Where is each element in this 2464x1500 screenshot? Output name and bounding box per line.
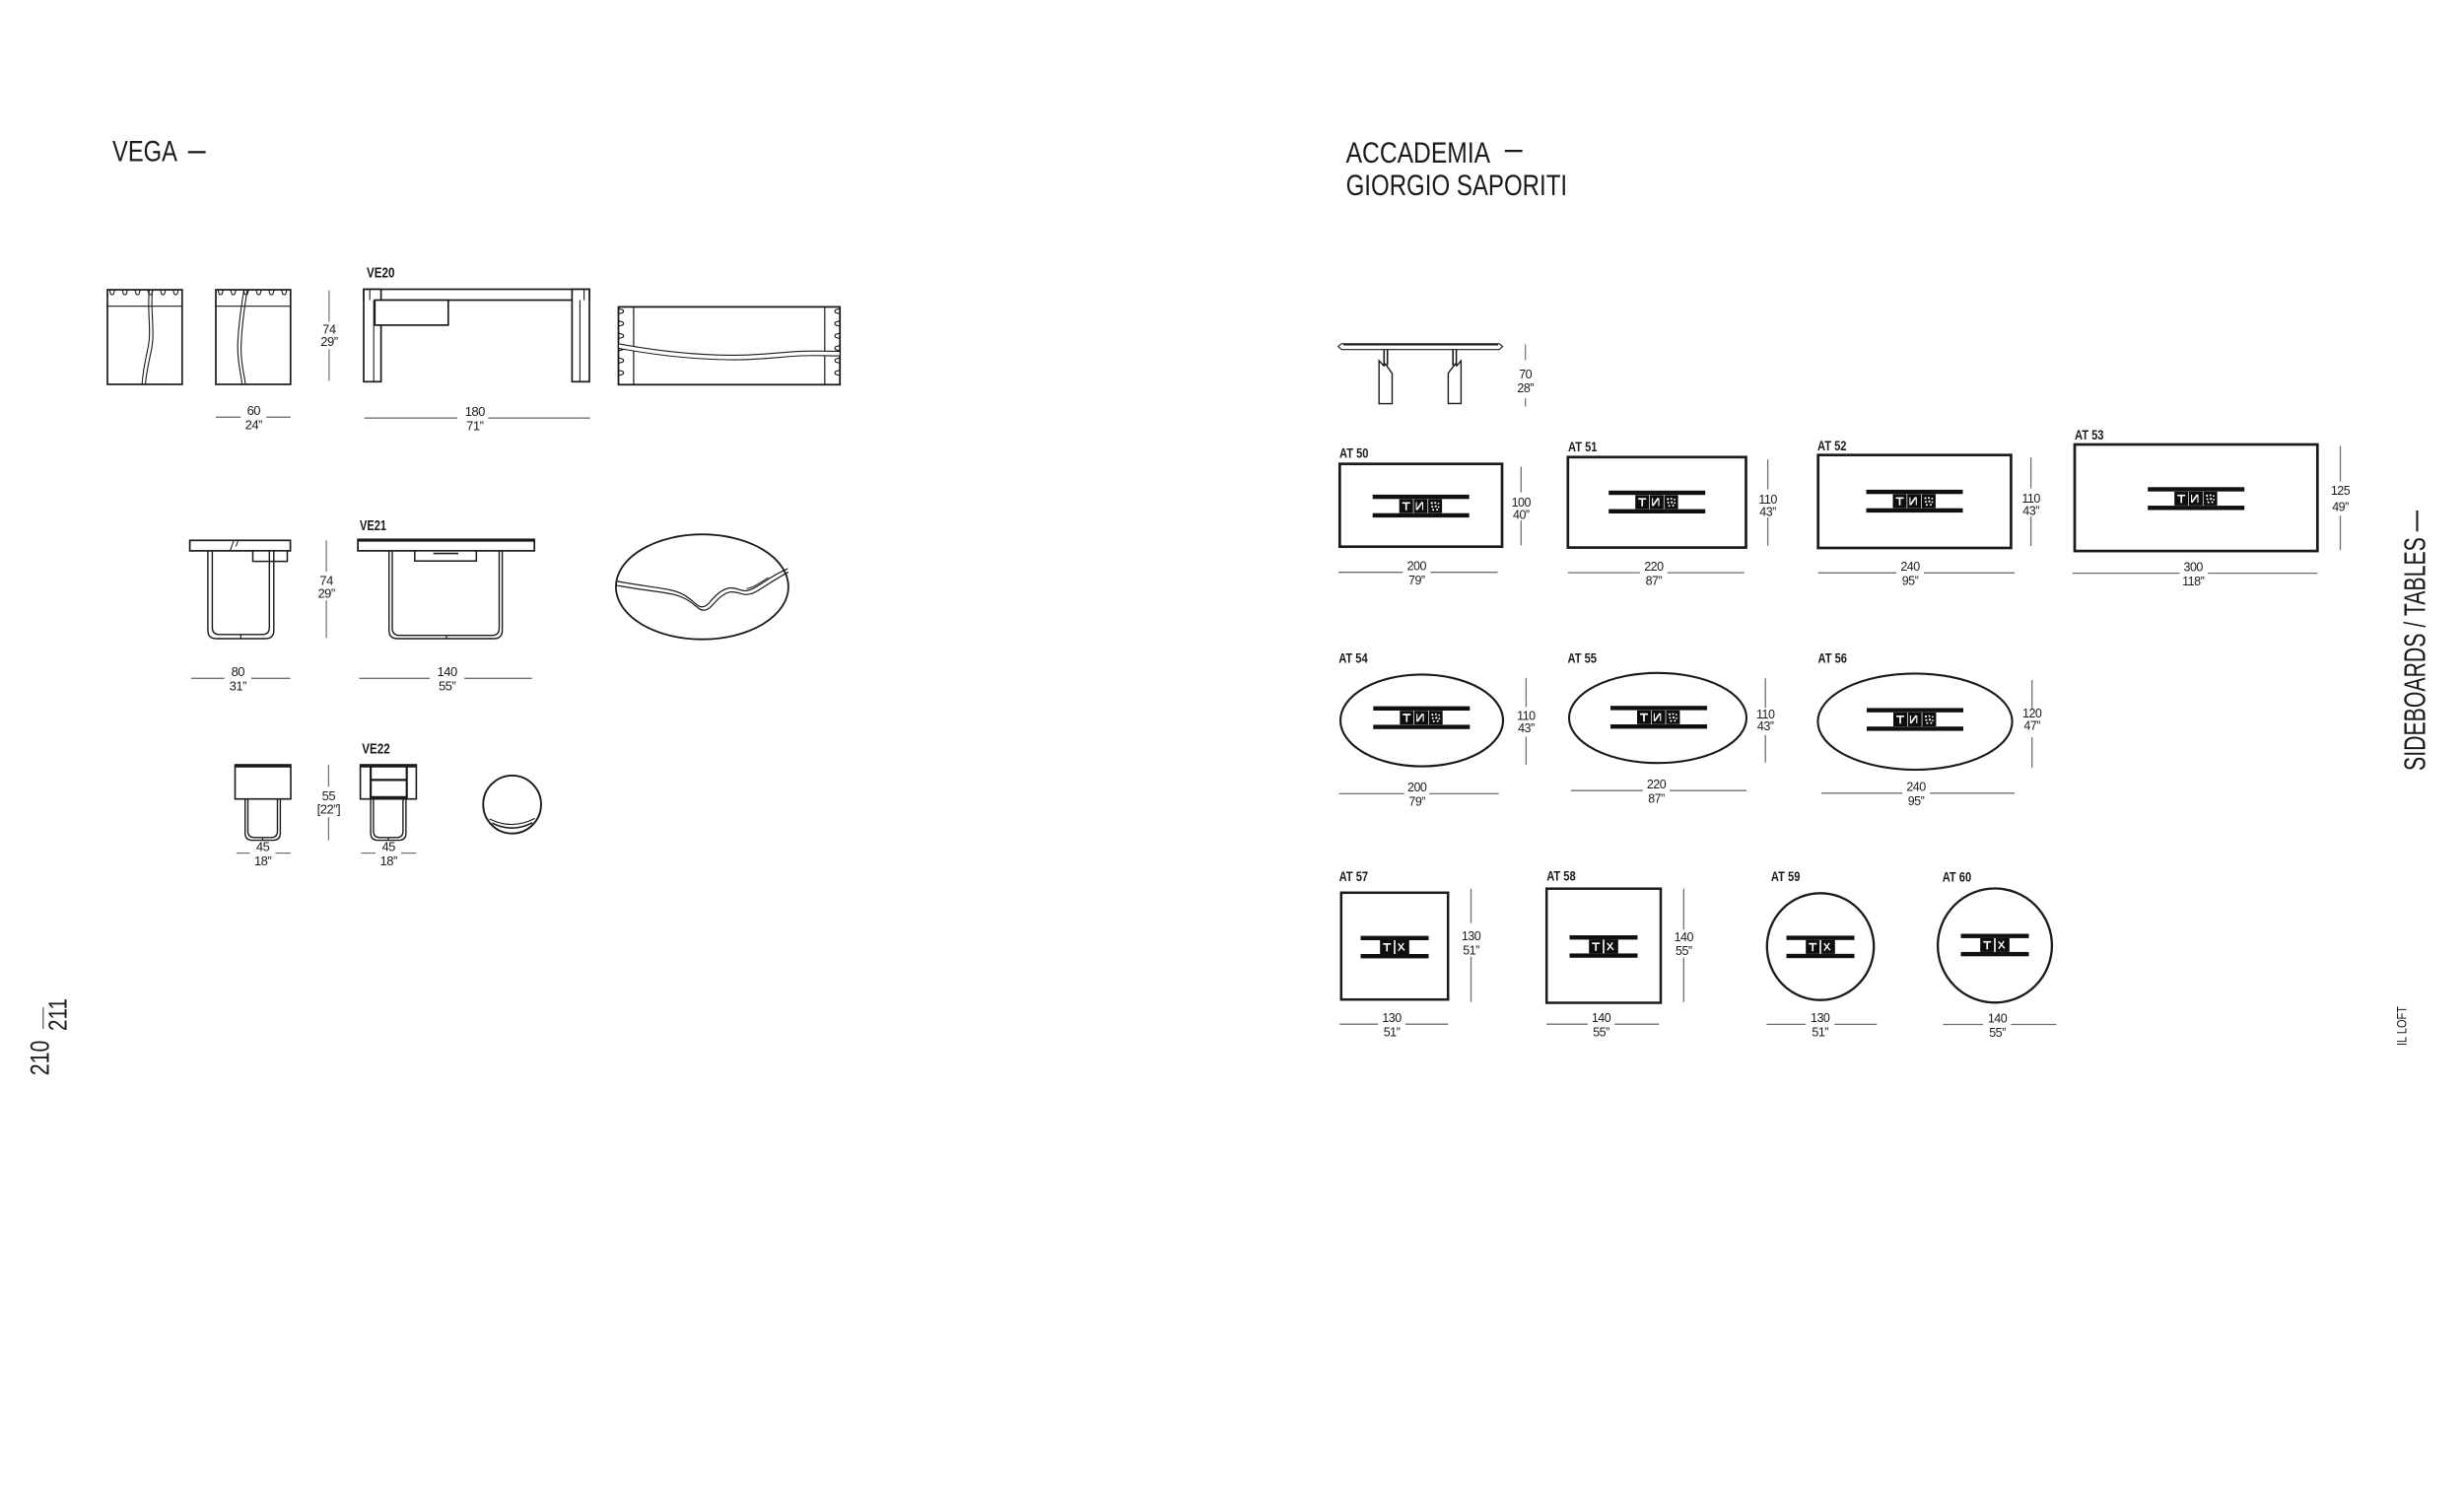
svg-text:60: 60: [247, 403, 261, 418]
svg-text:220: 220: [1644, 560, 1664, 574]
svg-text:130: 130: [1462, 929, 1481, 943]
svg-text:31”: 31”: [230, 679, 246, 694]
svg-text:55”: 55”: [439, 679, 455, 694]
svg-text:180: 180: [465, 404, 485, 419]
svg-text:79”: 79”: [1408, 574, 1425, 587]
svg-text:ACCADEMIA: ACCADEMIA: [1346, 137, 1491, 170]
svg-text:AT 54: AT 54: [1338, 650, 1368, 666]
svg-text:51”: 51”: [1384, 1026, 1401, 1040]
svg-text:211: 211: [43, 998, 73, 1031]
svg-text:87”: 87”: [1646, 574, 1663, 587]
svg-text:125: 125: [2331, 484, 2351, 498]
svg-text:210: 210: [25, 1041, 54, 1076]
svg-text:200: 200: [1407, 560, 1427, 574]
svg-text:200: 200: [1407, 781, 1427, 794]
svg-text:40”: 40”: [1513, 508, 1530, 521]
svg-text:95”: 95”: [1908, 794, 1925, 808]
svg-text:AT 57: AT 57: [1339, 868, 1369, 884]
svg-text:45: 45: [256, 839, 270, 853]
svg-text:43”: 43”: [1518, 721, 1535, 735]
svg-text:51”: 51”: [1463, 943, 1479, 957]
svg-text:VE22: VE22: [362, 742, 390, 758]
svg-text:[22”]: [22”]: [317, 801, 341, 816]
svg-text:79”: 79”: [1408, 795, 1425, 809]
svg-text:AT 60: AT 60: [1943, 869, 1972, 885]
svg-text:VE20: VE20: [367, 266, 395, 282]
svg-text:AT 51: AT 51: [1568, 439, 1598, 454]
svg-text:140: 140: [1988, 1011, 2008, 1025]
svg-text:51”: 51”: [1812, 1026, 1828, 1040]
svg-text:49”: 49”: [2332, 501, 2349, 514]
svg-text:55”: 55”: [1593, 1026, 1609, 1040]
svg-text:29”: 29”: [320, 334, 337, 349]
svg-text:300: 300: [2184, 560, 2204, 574]
svg-text:AT 53: AT 53: [2075, 427, 2104, 443]
svg-text:VEGA: VEGA: [112, 135, 177, 168]
svg-text:55”: 55”: [1676, 944, 1692, 958]
svg-text:AT 59: AT 59: [1771, 868, 1801, 884]
svg-text:43”: 43”: [2022, 504, 2039, 517]
svg-text:71”: 71”: [466, 419, 483, 434]
svg-text:AT 50: AT 50: [1339, 445, 1369, 461]
svg-text:28”: 28”: [1517, 381, 1534, 395]
svg-text:80: 80: [232, 664, 245, 679]
svg-text:24”: 24”: [245, 418, 262, 433]
svg-text:220: 220: [1647, 778, 1667, 791]
svg-text:130: 130: [1382, 1011, 1402, 1025]
svg-text:AT 52: AT 52: [1817, 438, 1847, 453]
svg-text:240: 240: [1900, 560, 1920, 574]
svg-text:AT 58: AT 58: [1546, 867, 1576, 883]
svg-text:140: 140: [437, 664, 456, 679]
svg-text:95”: 95”: [1902, 575, 1919, 588]
svg-text:29”: 29”: [317, 585, 334, 600]
svg-text:GIORGIO SAPORITI: GIORGIO SAPORITI: [1346, 170, 1568, 202]
svg-text:43”: 43”: [1759, 505, 1776, 518]
svg-text:18”: 18”: [254, 853, 271, 868]
svg-text:45: 45: [381, 839, 395, 853]
svg-text:VE21: VE21: [360, 518, 386, 534]
svg-text:IL LOFT: IL LOFT: [2395, 1006, 2410, 1046]
svg-text:43”: 43”: [1757, 719, 1774, 733]
svg-text:118”: 118”: [2182, 575, 2204, 588]
svg-text:87”: 87”: [1648, 792, 1665, 806]
svg-text:SIDEBOARDS / TABLES —: SIDEBOARDS / TABLES —: [2398, 511, 2432, 771]
svg-text:AT 56: AT 56: [1818, 650, 1848, 666]
svg-text:140: 140: [1592, 1011, 1611, 1025]
svg-text:140: 140: [1675, 930, 1694, 944]
svg-text:130: 130: [1811, 1011, 1830, 1025]
svg-text:55”: 55”: [1989, 1026, 2006, 1040]
svg-text:18”: 18”: [380, 853, 397, 868]
svg-text:47”: 47”: [2023, 719, 2040, 733]
svg-text:70: 70: [1519, 368, 1532, 381]
svg-text:240: 240: [1906, 781, 1926, 794]
svg-text:AT 55: AT 55: [1568, 650, 1598, 666]
